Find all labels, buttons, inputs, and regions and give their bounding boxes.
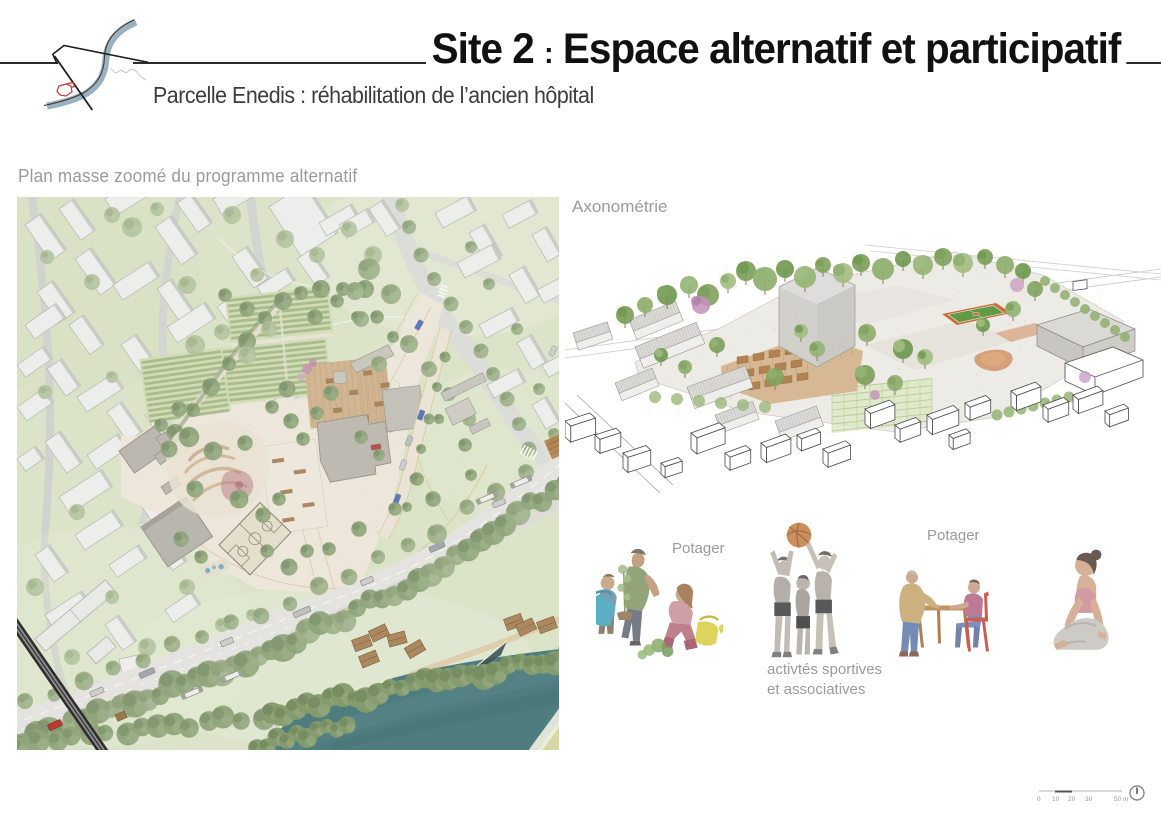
svg-text:30: 30: [1085, 796, 1093, 803]
svg-text:0: 0: [1037, 796, 1041, 803]
svg-text:50 m: 50 m: [1114, 796, 1128, 803]
svg-text:20: 20: [1068, 796, 1076, 803]
svg-text:10: 10: [1052, 796, 1060, 803]
